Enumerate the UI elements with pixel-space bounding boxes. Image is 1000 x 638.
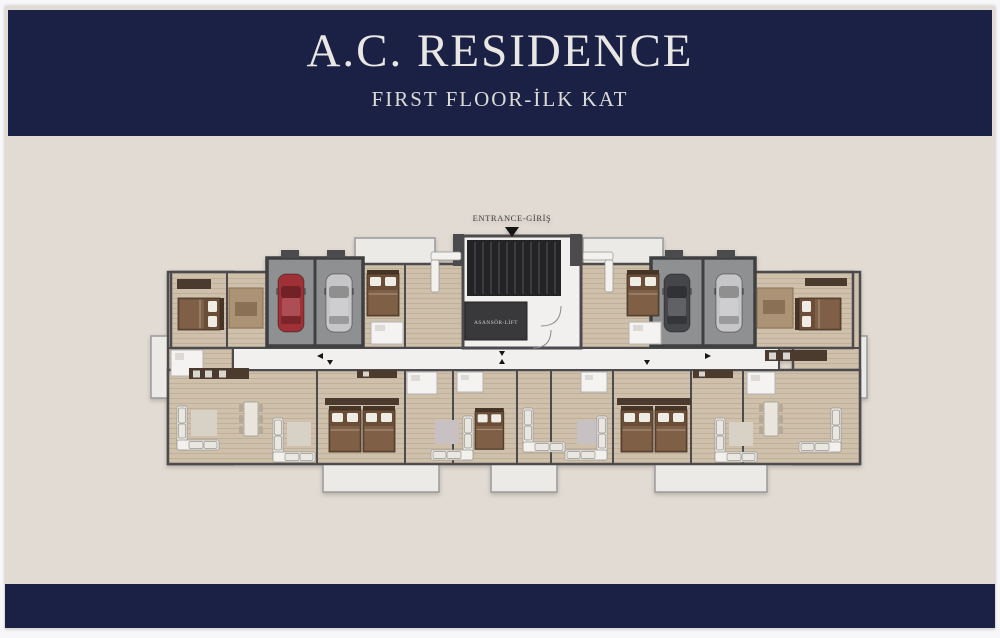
bed-icon [178,298,224,330]
closet [805,278,847,286]
bed-icon [655,406,687,452]
elevator: ASANSÖR-LİFT [465,302,527,340]
bed-icon [475,408,504,449]
garage-right [651,250,755,346]
bathroom [581,372,607,392]
balcony-bottom-2 [491,461,557,492]
elevator-label: ASANSÖR-LİFT [474,319,518,326]
dining-table-icon [239,402,263,436]
bed-icon [329,406,361,452]
bed-icon [627,270,659,316]
car-dark [662,274,692,332]
bed-icon [795,298,841,330]
bathroom [457,372,483,392]
entry-pillar-right [570,234,581,266]
balcony-bottom-1 [323,461,439,492]
corridor-floor [233,348,779,370]
balcony-bottom-3 [655,461,767,492]
car-silver-left [324,274,354,332]
wardrobe [617,398,691,405]
footer-band [5,584,995,628]
entrance-label: ENTRANCE-GİRİŞ [473,213,552,223]
entry-pillar-left [453,234,464,266]
bed-icon [621,406,653,452]
staircase [467,240,561,296]
floor-plan: ASANSÖR-LİFT [5,6,1000,638]
entrance-core: ASANSÖR-LİFT [453,234,581,348]
closet [177,279,211,289]
car-silver-right [714,274,744,332]
bed-icon [363,406,395,452]
entrance-callout: ENTRANCE-GİRİŞ [473,213,552,237]
car-red [276,274,306,332]
dining-table-icon [759,402,783,436]
bed-icon [367,270,399,316]
poster-sheet: A.C. RESIDENCE FIRST FLOOR-İLK KAT [5,6,995,629]
garage-left [267,250,363,346]
wardrobe [325,398,399,405]
balcony-top-left [355,238,435,266]
